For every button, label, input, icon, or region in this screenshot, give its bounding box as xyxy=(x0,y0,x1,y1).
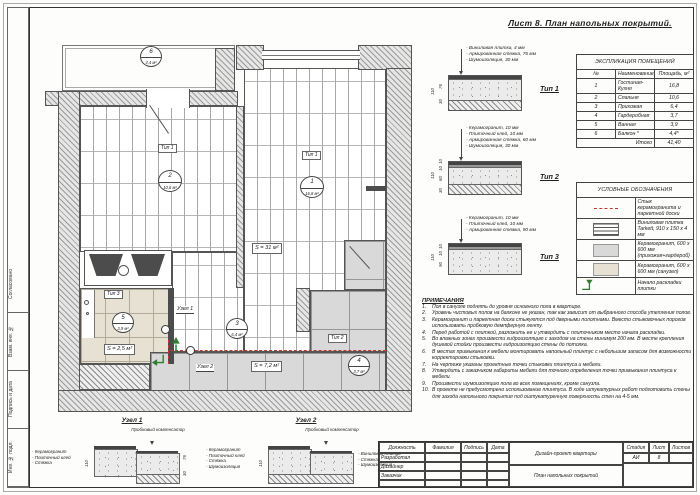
type3-leader xyxy=(461,219,462,239)
drawing-sheet: Согласовано Взам. инв. № Подпись и дата … xyxy=(0,0,700,495)
note-item: 8.Утвердить с заказчиком габариты мебели… xyxy=(422,368,694,381)
legend-item: Керамогранит, 600 х 600 мм (санузел) xyxy=(577,261,694,278)
bath-fixture-dot xyxy=(84,300,89,305)
node2-label: Узел 2 xyxy=(196,364,214,372)
type3-dims: 10 10 90 xyxy=(438,243,444,273)
legend-table: УСЛОВНЫЕ ОБОЗНАЧЕНИЯ Стык керамогранита … xyxy=(576,182,694,295)
tile-start-arrow-2 xyxy=(171,337,181,357)
notes-block: ПРИМЕЧАНИЯ 1.Пол в санузле поднять до ур… xyxy=(422,298,694,400)
node1-left-labels: - Керамогранит - Плиточный клей - Стяжка xyxy=(32,449,71,466)
type1-detail: - Виниловая плитка, 4 мм - Армированная … xyxy=(428,46,570,118)
col-signature: Подпись xyxy=(461,442,487,453)
legend-item: Виниловая плитка Tarkett, 910 х 150 х 4 … xyxy=(577,219,694,240)
area-label-living: S = 31 м² xyxy=(252,243,282,254)
node1-dim-76: 76 xyxy=(182,449,188,467)
left-stamp-column: Согласовано Взам. инв. № Подпись и дата … xyxy=(7,7,29,488)
table-row: 4Гардеробная3,7 xyxy=(577,112,694,121)
stage-empty-cell xyxy=(623,463,693,487)
sheet-value: 8 xyxy=(649,453,669,463)
explication-table: ЭКСПЛИКАЦИЯ ПОМЕЩЕНИЙ № Наименование Пло… xyxy=(576,54,694,148)
joint-line-vertical xyxy=(168,340,169,364)
joint-line-symbol xyxy=(594,208,618,209)
vinyl-plank-symbol xyxy=(593,223,619,236)
sheet-label: Лист xyxy=(649,442,669,453)
area-label-hall: S = 7,2 м² xyxy=(251,361,282,372)
sheets-label: Листов xyxy=(669,442,693,453)
stage-grid: Стадия Лист Листов АИ 8 xyxy=(623,442,693,487)
balcony-pillar xyxy=(215,48,235,91)
sheets-value xyxy=(669,453,693,463)
stage-value: АИ xyxy=(623,453,649,463)
type1-leader xyxy=(461,49,462,71)
type1-name: Тип 1 xyxy=(540,84,559,93)
type2-detail: - Керамогранит, 10 мм - Плиточный клей, … xyxy=(428,126,570,204)
col-area: Площадь, м² xyxy=(655,70,694,79)
stamp-podpis-data: Подпись и дата xyxy=(8,371,28,429)
node1-circle xyxy=(161,325,170,334)
room-marker-6: 6 4,4 м² xyxy=(140,46,162,67)
stamp-vzam-inv: Взам. инв. № xyxy=(8,313,28,371)
room-marker-3: 3 6,4 м² xyxy=(226,318,248,339)
table-row: 1Гостиная-Кухня16,8 xyxy=(577,79,694,94)
room-marker-2: 2 10,6 м² xyxy=(158,170,182,192)
node2-compensator: Пробковый компенсатор xyxy=(302,427,362,433)
node1-comp-arrow xyxy=(150,441,154,445)
type2-dims: 10 10 60 30 xyxy=(438,158,444,195)
start-arrow-symbol xyxy=(579,279,595,291)
row-developed: Разработал xyxy=(379,453,425,462)
col-surname: Фамилия xyxy=(425,442,461,453)
type3-section xyxy=(448,243,522,275)
document-name: План напольных покрытий xyxy=(509,465,623,487)
node2-left-labels: - Керамогранит - Плиточный клей - Стяжка… xyxy=(206,447,245,469)
sheet-title: Лист 8. План напольных покрытий. xyxy=(492,18,688,28)
node2-detail: Узел 2 Пробковый компенсатор - Керамогра… xyxy=(206,417,396,487)
wall-living-top-left xyxy=(236,45,264,70)
type1-layers: - Виниловая плитка, 4 мм - Армированная … xyxy=(466,46,536,64)
type2-dim-total: 110 xyxy=(430,161,436,191)
node1-label: Узел 1 xyxy=(176,306,194,314)
wall-left xyxy=(58,91,80,392)
balcony-door-opening xyxy=(146,89,190,108)
beige-tile-symbol xyxy=(593,263,619,276)
tile-start-arrow-1 xyxy=(150,353,166,371)
node1-detail: Узел 1 Пробковый компенсатор - Керамогра… xyxy=(32,417,200,487)
living-window xyxy=(262,50,360,60)
row-client: Заказчик xyxy=(379,471,425,480)
title-block: Должность Фамилия Подпись Дата Разработа… xyxy=(378,441,694,488)
project-cells: Дизайн-проект квартиры План напольных по… xyxy=(509,442,623,487)
col-num: № xyxy=(577,70,616,79)
type3-name: Тип 3 xyxy=(540,252,559,261)
type3-dim-total: 110 xyxy=(430,243,436,273)
node2-section xyxy=(268,446,352,482)
node2-circle xyxy=(186,346,195,355)
wall-bottom xyxy=(58,390,412,412)
node1-compensator: Пробковый компенсатор xyxy=(128,427,188,433)
explication-title: ЭКСПЛИКАЦИЯ ПОМЕЩЕНИЙ xyxy=(577,55,694,70)
hallway-floor-tiles-mid xyxy=(310,290,386,352)
joint-line-horizontal xyxy=(170,350,386,351)
bath-hatched-zone xyxy=(70,364,150,390)
type1-dim-total: 110 xyxy=(430,76,436,108)
wall-bedroom-living-divider xyxy=(236,106,244,288)
note-item: 10.В проекте не предусмотрено использова… xyxy=(422,387,694,400)
room-marker-1: 1 16,8 м² xyxy=(300,176,324,198)
stamp-soglasovano: Согласовано xyxy=(8,255,28,313)
wall-right xyxy=(386,68,412,392)
room-marker-5: 5 3,9 м² xyxy=(112,312,134,333)
tag-living: Тип 1 xyxy=(302,151,321,160)
type3-layers: - Керамогранит, 10 мм - Плиточный клей, … xyxy=(466,216,536,234)
project-name: Дизайн-проект квартиры xyxy=(509,442,623,465)
stage-label: Стадия xyxy=(623,442,649,453)
note-item: 6.В местах примыкания к мебели монтирова… xyxy=(422,349,694,362)
total-row: Итого 41,40 xyxy=(577,139,694,148)
col-date: Дата xyxy=(487,442,509,453)
col-name: Наименование xyxy=(616,70,655,79)
node2-dim-total: 110 xyxy=(258,447,264,481)
type3-detail: - Керамогранит, 10 мм - Плиточный клей, … xyxy=(428,216,570,288)
node2-title: Узел 2 xyxy=(266,417,346,424)
node1-section xyxy=(94,446,178,482)
note-item: 3.Керамогранит и паркетная доска стыкуют… xyxy=(422,317,694,330)
gray-tile-symbol xyxy=(593,244,619,257)
type1-section xyxy=(448,75,522,111)
legend-title: УСЛОВНЫЕ ОБОЗНАЧЕНИЯ xyxy=(577,183,694,198)
table-row: 3Прихожая6,4 xyxy=(577,103,694,112)
table-row: 2Спальня10,6 xyxy=(577,94,694,103)
legend-item: Начало раскладки плитки xyxy=(577,278,694,295)
wardrobe-door-right xyxy=(131,254,165,276)
node1-dim-total: 110 xyxy=(84,447,90,481)
bath-fixture-dot2 xyxy=(86,312,89,315)
node2-comp-arrow xyxy=(324,441,328,445)
node1-title: Узел 1 xyxy=(92,417,172,424)
note-item: 5.Во влажных зонах произвести гидроизоля… xyxy=(422,336,694,349)
legend-item: Стык керамогранита и паркетной доски xyxy=(577,198,694,219)
tag-bath: Тип 3 xyxy=(104,290,123,299)
legend-item: Керамогранит, 600 х 600 мм (прихожая+гар… xyxy=(577,240,694,261)
type2-leader xyxy=(461,129,462,157)
wall-hall-step xyxy=(296,288,310,332)
signature-grid: Должность Фамилия Подпись Дата Разработа… xyxy=(379,442,509,487)
radiator-bar xyxy=(366,186,386,191)
type2-layers: - Керамогранит, 10 мм - Плиточный клей, … xyxy=(466,126,536,150)
row-designer: Дизайнер xyxy=(379,462,425,471)
tag-bedroom: Тип 1 xyxy=(158,144,177,153)
wardrobe-band xyxy=(84,250,172,286)
type1-dims: 76 30 xyxy=(438,76,444,107)
type2-name: Тип 2 xyxy=(540,172,559,181)
total-value: 41,40 xyxy=(655,139,694,148)
sink-symbol xyxy=(118,265,129,276)
stamp-inv-podl: Инв. № подл. xyxy=(8,429,28,487)
total-label: Итого xyxy=(577,139,655,148)
area-label-bath: S = 2,5 м² xyxy=(104,344,135,355)
col-role: Должность xyxy=(379,442,425,453)
tag-hall: Тип 2 xyxy=(328,334,347,343)
node1-dim-30: 30 xyxy=(182,469,188,479)
type2-section xyxy=(448,161,522,195)
wall-living-top-right xyxy=(358,45,412,70)
room-marker-4: 4 3,7 м² xyxy=(348,355,370,376)
table-row: 5Ванная3,9 xyxy=(577,121,694,130)
table-row: 6Балкон *4,4* xyxy=(577,130,694,139)
